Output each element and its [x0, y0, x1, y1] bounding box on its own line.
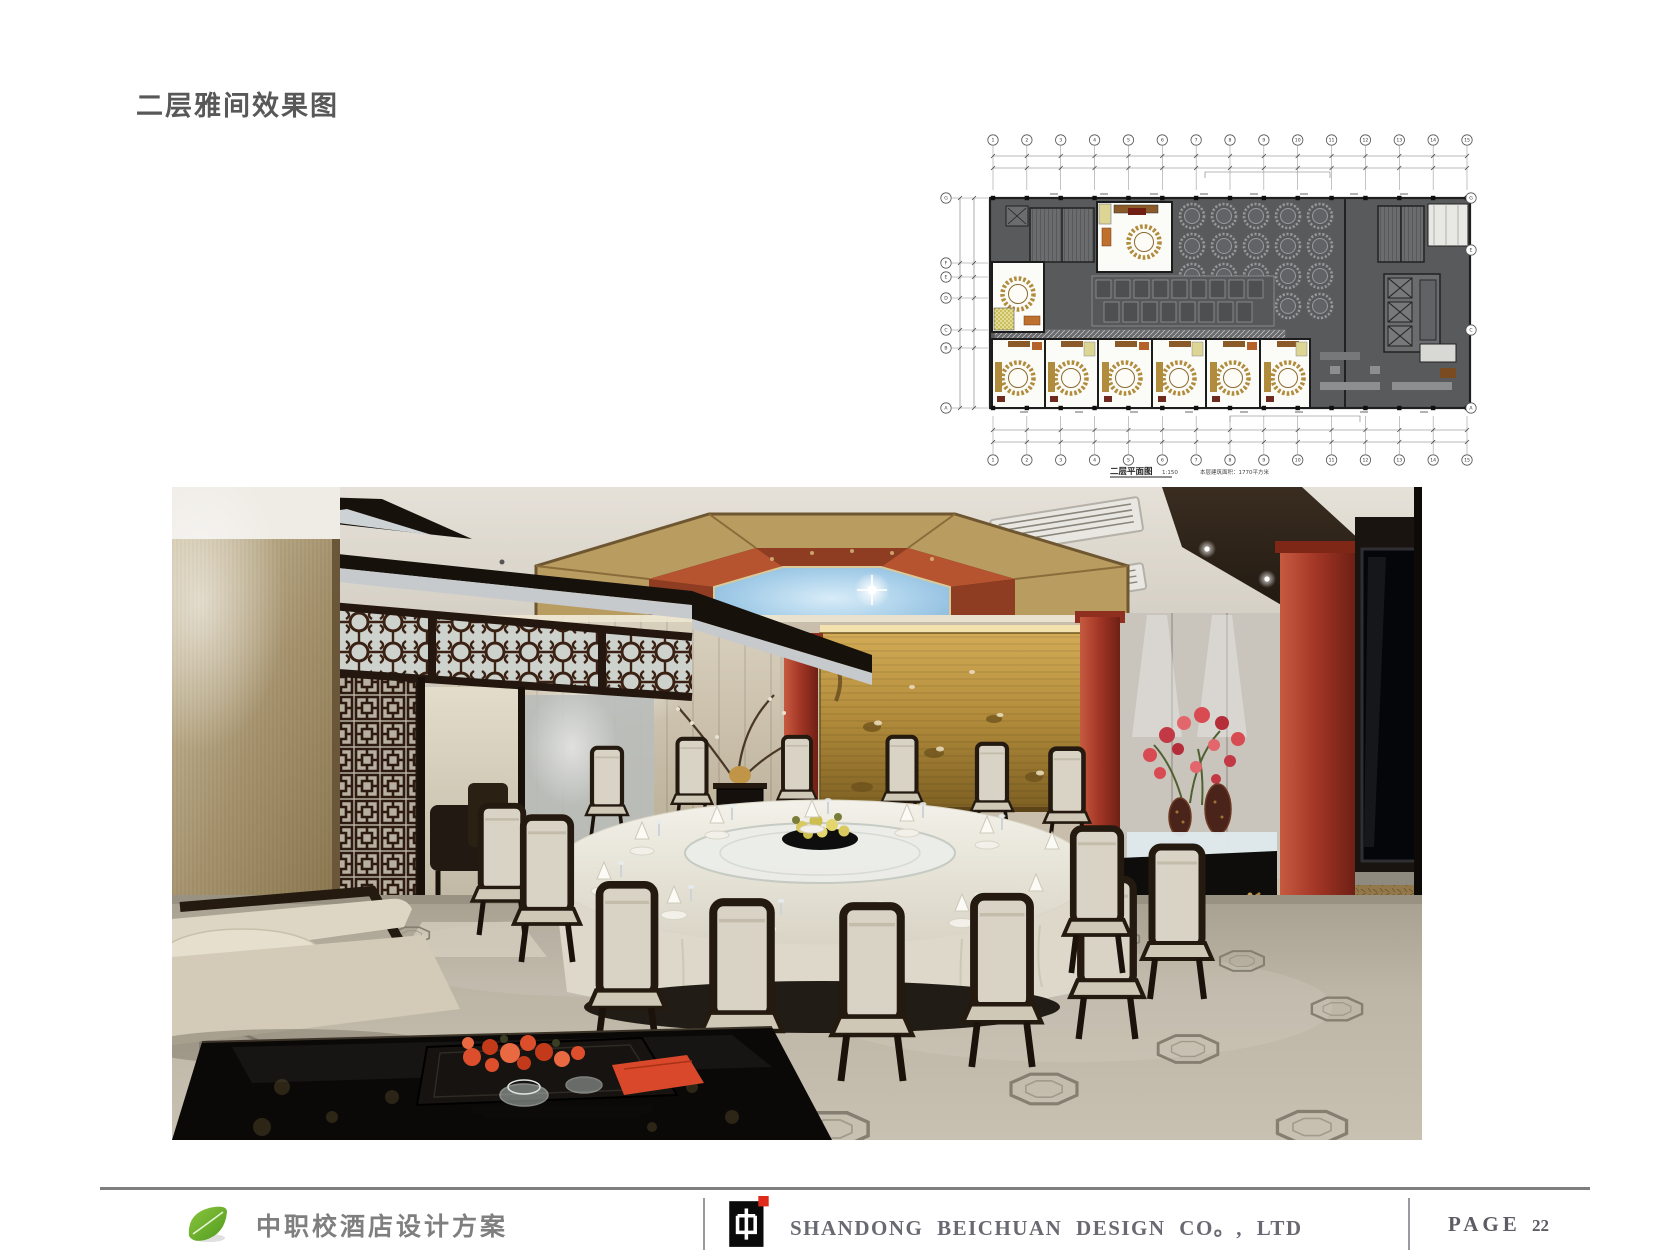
- page-title: 二层雅间效果图: [136, 84, 339, 123]
- svg-text:4: 4: [1093, 138, 1096, 144]
- project-name: 中职校酒店设计方案: [256, 1207, 508, 1243]
- svg-text:10: 10: [1295, 458, 1301, 464]
- grid-bubbles-top: 123456789101112131415: [988, 135, 1472, 145]
- svg-text:1: 1: [992, 138, 995, 144]
- svg-text:2: 2: [1025, 458, 1028, 464]
- plan-scale-text: 1:150: [1162, 470, 1178, 476]
- svg-text:11: 11: [1329, 138, 1335, 144]
- svg-text:7: 7: [1195, 458, 1198, 464]
- long-tables: [1092, 276, 1274, 326]
- grid-bubbles-left: GFEDCBA: [941, 193, 951, 413]
- svg-text:E: E: [1470, 248, 1473, 254]
- svg-text:7: 7: [1195, 138, 1198, 144]
- footer-divider-1: [703, 1198, 705, 1250]
- svg-text:10: 10: [1295, 138, 1301, 144]
- svg-text:G: G: [1469, 196, 1473, 202]
- rendering-photo: [172, 487, 1422, 1140]
- svg-text:G: G: [944, 196, 948, 202]
- svg-text:11: 11: [1329, 458, 1335, 464]
- svg-text:4: 4: [1093, 458, 1096, 464]
- page-number: 22: [1532, 1216, 1549, 1236]
- svg-text:2: 2: [1025, 138, 1028, 144]
- svg-text:1: 1: [992, 458, 995, 464]
- skylight-lamp: [854, 572, 890, 608]
- svg-text:9: 9: [1262, 138, 1265, 144]
- leaf-icon: [183, 1202, 231, 1251]
- svg-text:E: E: [945, 275, 948, 281]
- footer-rule: [100, 1187, 1590, 1190]
- company-name: SHANDONG BEICHUAN DESIGN CO。, LTD: [790, 1212, 1303, 1242]
- plan-caption: 二层平面图 1:150 本层建筑面积：1770平方米: [1110, 467, 1269, 477]
- tv-shelf: [1355, 872, 1422, 885]
- svg-text:6: 6: [1161, 138, 1164, 144]
- svg-text:C: C: [944, 328, 947, 334]
- svg-text:C: C: [1469, 328, 1472, 334]
- grasscloth-pillar: [172, 487, 340, 919]
- svg-text:8: 8: [1229, 138, 1232, 144]
- svg-text:13: 13: [1396, 458, 1402, 464]
- svg-text:F: F: [945, 261, 948, 267]
- plan-caption-text: 二层平面图: [1110, 467, 1153, 477]
- svg-text:15: 15: [1464, 138, 1470, 144]
- svg-text:14: 14: [1430, 458, 1436, 464]
- floor-plan: 123456789101112131415 123456789101112131…: [900, 130, 1480, 480]
- svg-text:5: 5: [1127, 458, 1130, 464]
- coffee-table: [172, 1027, 832, 1140]
- svg-text:3: 3: [1059, 138, 1062, 144]
- floor-plan-drawing: 123456789101112131415 123456789101112131…: [900, 130, 1480, 480]
- footer-divider-2: [1408, 1198, 1410, 1250]
- svg-text:6: 6: [1161, 458, 1164, 464]
- svg-text:D: D: [944, 296, 948, 302]
- svg-text:12: 12: [1362, 138, 1368, 144]
- grid-bubbles-bottom: 123456789101112131415: [988, 455, 1472, 465]
- svg-text:12: 12: [1362, 458, 1368, 464]
- plan-area-note: 本层建筑面积：1770平方米: [1200, 468, 1269, 476]
- svg-text:14: 14: [1430, 138, 1436, 144]
- slide-page: 二层雅间效果图: [0, 0, 1680, 1260]
- private-dining-room-rendering: [172, 487, 1422, 1140]
- svg-text:9: 9: [1262, 458, 1265, 464]
- plan-body: [990, 193, 1470, 413]
- svg-text:15: 15: [1464, 458, 1470, 464]
- svg-text:8: 8: [1229, 458, 1232, 464]
- svg-text:3: 3: [1059, 458, 1062, 464]
- company-logo: [728, 1196, 772, 1255]
- page-label: PAGE: [1448, 1212, 1521, 1237]
- svg-text:13: 13: [1396, 138, 1402, 144]
- svg-text:B: B: [944, 346, 947, 352]
- svg-text:5: 5: [1127, 138, 1130, 144]
- private-rooms: [992, 339, 1310, 408]
